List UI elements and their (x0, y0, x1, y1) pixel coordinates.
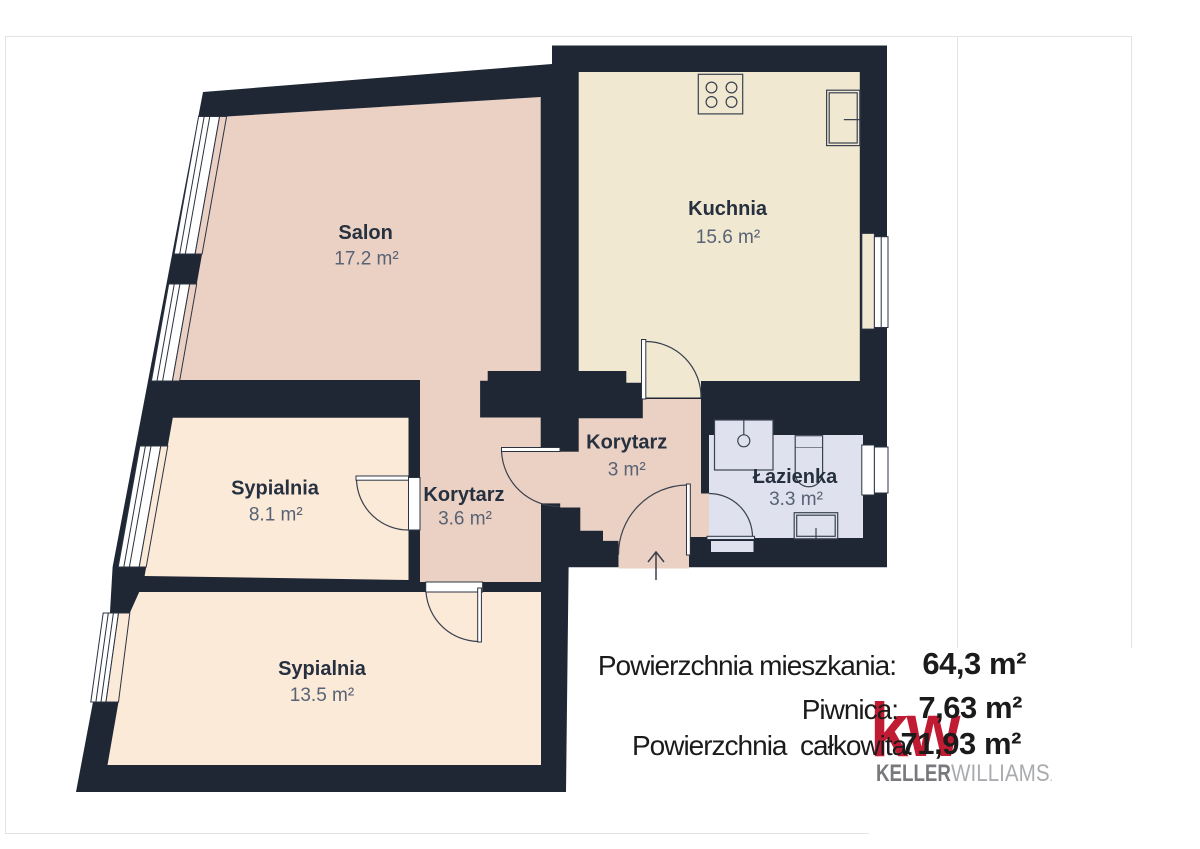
svg-text:3.3 m²: 3.3 m² (769, 489, 823, 510)
svg-text:Kuchnia: Kuchnia (688, 198, 768, 220)
svg-text:Korytarz: Korytarz (423, 484, 504, 506)
svg-text:8.1 m²: 8.1 m² (249, 505, 303, 526)
svg-text:3.6 m²: 3.6 m² (438, 509, 492, 530)
svg-text:3 m²: 3 m² (608, 460, 646, 481)
svg-text:15.6 m²: 15.6 m² (696, 227, 760, 248)
svg-text:Sypialnia: Sypialnia (231, 478, 320, 500)
svg-text:Łazienka: Łazienka (753, 466, 838, 488)
svg-text:Korytarz: Korytarz (586, 432, 667, 454)
svg-text:17.2 m²: 17.2 m² (334, 249, 398, 270)
svg-text:Salon: Salon (338, 222, 392, 244)
